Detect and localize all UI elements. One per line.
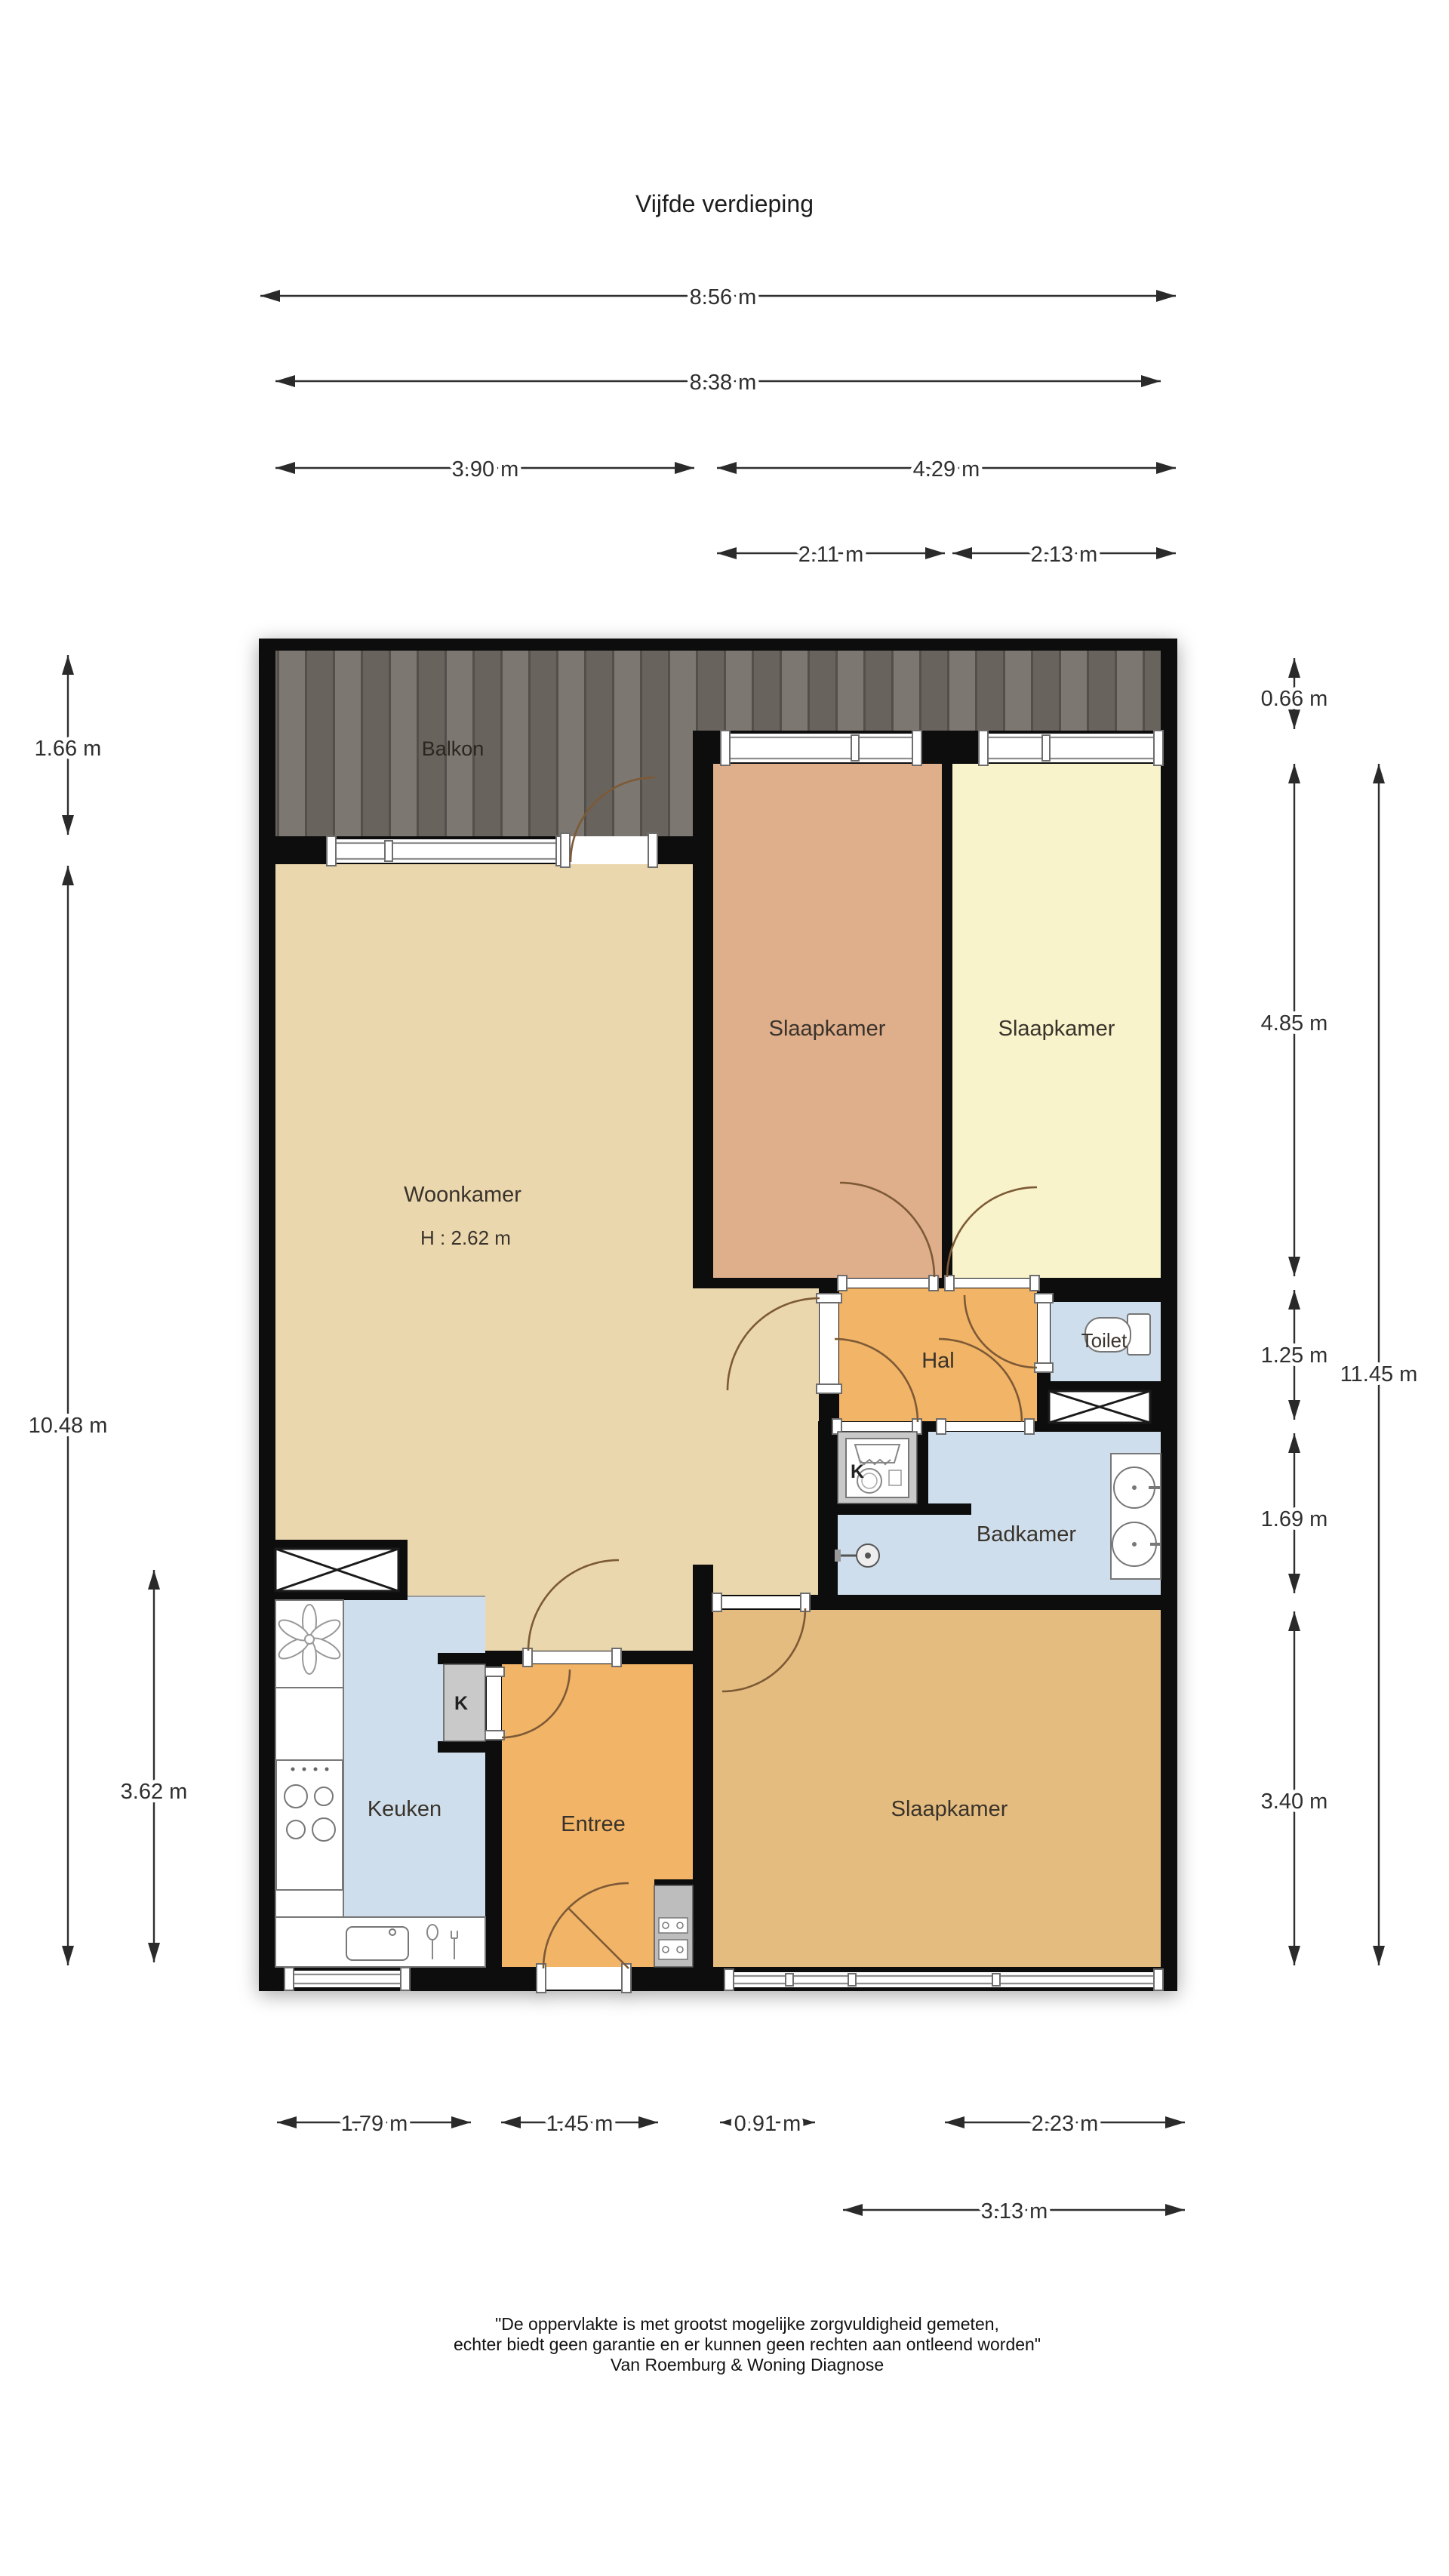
dim-bottom-window: 2.23 m xyxy=(1032,2112,1099,2136)
door-band xyxy=(1038,1296,1050,1370)
window-post xyxy=(523,1648,532,1667)
fan-hub-icon xyxy=(305,1635,314,1644)
window-post xyxy=(612,1648,621,1667)
label-badkamer: Badkamer xyxy=(977,1522,1077,1547)
window-post xyxy=(817,1294,841,1303)
door-band xyxy=(525,1651,619,1663)
window-post xyxy=(945,1276,954,1291)
plan: Balkon Woonkamer H : 2.62 m Slaapkamer S… xyxy=(259,639,1177,1993)
room-slaapkamer-bottom xyxy=(713,1610,1161,1967)
label-keuken: Keuken xyxy=(368,1797,441,1821)
dim-bottom-slaapkamer: 3.13 m xyxy=(981,2199,1048,2224)
window-mullion xyxy=(851,735,859,761)
window-post xyxy=(561,833,570,867)
label-toilet: Toilet xyxy=(1081,1329,1128,1352)
window-post xyxy=(1035,1294,1053,1303)
dim-right-badkamer: 1.69 m xyxy=(1261,1507,1328,1531)
window-post xyxy=(327,836,336,866)
floorplan-page: Vijfde verdieping xyxy=(0,0,1449,2576)
dim-bottom-keuken: 1.79 m xyxy=(341,2112,408,2136)
dim-right-slaapkamers: 4.85 m xyxy=(1261,1011,1328,1036)
window-post xyxy=(622,1964,631,1993)
dim-right-balkon: 0.66 m xyxy=(1261,687,1328,711)
dim-bottom-door: 0.91 m xyxy=(734,2112,801,2136)
window-mullion xyxy=(848,1974,856,1986)
disclaimer-line-3: Van Roemburg & Woning Diagnose xyxy=(23,2355,1449,2375)
window-post xyxy=(1154,1969,1163,1990)
label-balkon: Balkon xyxy=(422,737,485,760)
dim-bedroom-right: 2.13 m xyxy=(1031,543,1098,567)
label-slaapkamer-2: Slaapkamer xyxy=(998,1017,1115,1041)
label-slaapkamer-1: Slaapkamer xyxy=(769,1017,886,1041)
window-post xyxy=(1035,1363,1053,1372)
window-post xyxy=(724,1969,734,1990)
door-band xyxy=(939,1422,1032,1431)
window-post xyxy=(979,731,988,765)
dim-top-left: 3.90 m xyxy=(452,457,519,482)
dim-bottom-entree: 1.45 m xyxy=(546,2112,614,2136)
window-post xyxy=(484,1731,504,1740)
window-post xyxy=(1025,1419,1034,1434)
label-slaapkamer-3: Slaapkamer xyxy=(891,1797,1008,1821)
dim-left-woonkamer: 10.48 m xyxy=(29,1414,108,1438)
label-woonkamer-height: H : 2.62 m xyxy=(420,1226,511,1249)
window-post xyxy=(937,1419,946,1434)
window-post xyxy=(817,1384,841,1393)
window-mullion xyxy=(992,1974,1000,1986)
window-post xyxy=(929,1276,938,1291)
door-band xyxy=(539,1967,629,1990)
door-band xyxy=(715,1596,808,1608)
window-post xyxy=(401,1968,410,1990)
dim-left-balkon: 1.66 m xyxy=(35,737,102,761)
disclaimer: "De oppervlakte is met grootst mogelijke… xyxy=(23,2314,1449,2375)
window-post xyxy=(285,1968,294,1990)
label-entree: Entree xyxy=(561,1812,625,1836)
dim-top-inner: 8.38 m xyxy=(690,371,757,395)
window-post xyxy=(838,1276,847,1291)
disclaimer-line-2: echter biedt geen garantie en er kunnen … xyxy=(23,2334,1449,2355)
disclaimer-line-1: "De oppervlakte is met grootst mogelijke… xyxy=(23,2314,1449,2334)
label-hal: Hal xyxy=(921,1349,955,1373)
stove-icon xyxy=(276,1760,343,1890)
label-woonkamer: Woonkamer xyxy=(404,1183,521,1207)
door-band xyxy=(835,1422,919,1431)
dim-left-keuken: 3.62 m xyxy=(121,1780,188,1804)
dim-bedroom-left: 2.11 m xyxy=(798,543,864,567)
door-band xyxy=(947,1279,1037,1288)
dim-right-total: 11.45 m xyxy=(1340,1362,1418,1386)
dim-top-total: 8.56 m xyxy=(690,285,757,309)
dim-right-slaapkamer-bottom: 3.40 m xyxy=(1261,1790,1328,1814)
label-closet-k-entree: K xyxy=(454,1693,468,1714)
window-post xyxy=(648,833,657,867)
window-post xyxy=(1030,1276,1039,1291)
window-post xyxy=(484,1667,504,1676)
shower-valve-icon xyxy=(835,1550,841,1562)
window-mullion xyxy=(1042,735,1050,761)
label-closet-k-badkamer: K xyxy=(851,1461,864,1482)
door-band xyxy=(563,836,655,864)
window-post xyxy=(712,1593,721,1611)
window-post xyxy=(912,731,921,765)
window-mullion xyxy=(385,841,392,861)
dim-right-hal: 1.25 m xyxy=(1261,1343,1328,1368)
sink-icon xyxy=(346,1927,408,1960)
door-band xyxy=(820,1296,838,1391)
dim-top-right: 4.29 m xyxy=(913,457,980,482)
door-band xyxy=(840,1279,936,1288)
window-band xyxy=(287,1971,408,1987)
floorplan-drawing: Balkon Woonkamer H : 2.62 m Slaapkamer S… xyxy=(0,0,1449,2576)
window-post xyxy=(1154,731,1163,765)
window-mullion xyxy=(786,1974,793,1986)
window-post xyxy=(721,731,730,765)
door-band xyxy=(487,1670,501,1737)
